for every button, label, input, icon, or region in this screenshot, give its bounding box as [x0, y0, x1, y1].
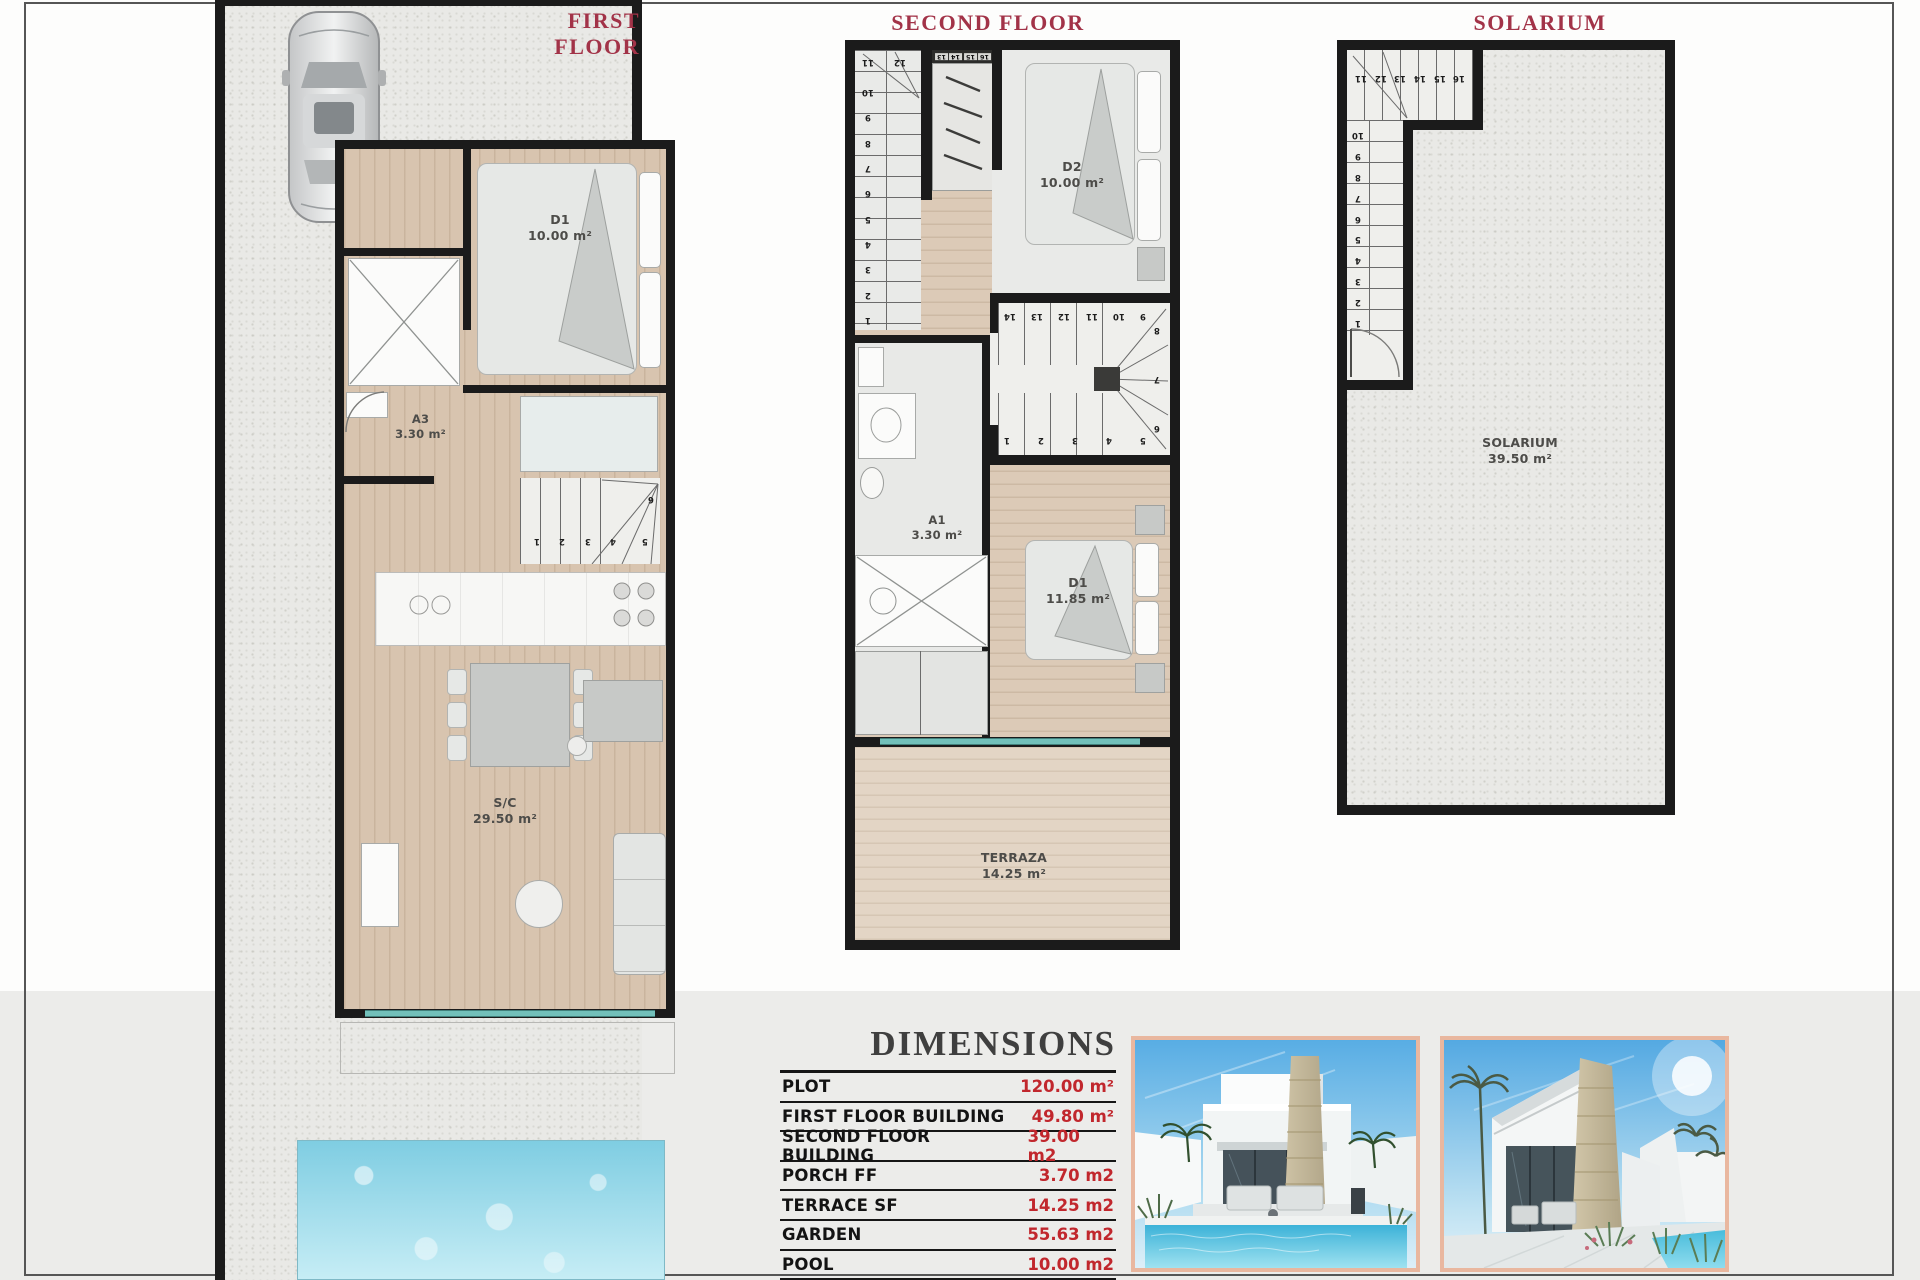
stair-number: 15: [964, 53, 977, 60]
stair-number: 14: [1004, 311, 1016, 321]
dimension-value: 39.00 m2: [1028, 1127, 1114, 1165]
ff-wall-left: [335, 140, 344, 1018]
dimension-value: 3.70 m2: [1039, 1166, 1114, 1185]
stair-number: 9: [1140, 311, 1146, 321]
sf-wall-stairs-left-b: [990, 425, 998, 455]
stair-numbers: 11 12: [862, 57, 906, 67]
stair-number: 7: [1355, 193, 1361, 203]
room-area: 10.00 m²: [1040, 175, 1104, 190]
room-name: D2: [1062, 159, 1081, 174]
ff-stairs: 1 2 3 4 6 5: [520, 478, 660, 564]
bed-pillow: [1135, 543, 1159, 597]
bed-pillow: [639, 172, 661, 268]
room-name: D1: [550, 212, 569, 227]
stair-number: 11: [1086, 311, 1098, 321]
ff-window-glass: [365, 1010, 655, 1017]
ff-wall-right: [666, 140, 675, 1018]
vanity-basin: [866, 403, 906, 447]
stair-number: 1: [534, 536, 540, 546]
sf-wall-stairs-left-a: [990, 303, 998, 333]
stair-number: 9: [1355, 151, 1361, 161]
stair-number: 14: [949, 53, 962, 60]
room-name: TERRAZA: [981, 850, 1047, 865]
dimension-value: 120.00 m²: [1020, 1077, 1114, 1096]
villa-render-photo-2: [1440, 1036, 1729, 1272]
dimension-label: TERRACE SF: [782, 1196, 898, 1215]
shower-x: [348, 258, 460, 386]
sol-wall-flight-bottom: [1337, 380, 1413, 390]
dimensions-table: PLOT 120.00 m² FIRST FLOOR BUILDING 49.8…: [780, 1070, 1116, 1280]
table-row: TERRACE SF 14.25 m2: [780, 1191, 1116, 1221]
room-area: 3.30 m²: [395, 427, 446, 441]
bathtub: [520, 396, 658, 472]
stair-number: 12: [1375, 73, 1387, 83]
stair-number: 10: [1113, 311, 1125, 321]
stair-number: 3: [1072, 435, 1078, 445]
chair: [447, 702, 467, 728]
stair-number: 2: [1038, 435, 1044, 445]
stair-numbers: 14 13 12 11 10 9: [1004, 311, 1146, 321]
shower-x: [855, 555, 988, 647]
stair-number: 4: [865, 239, 871, 249]
table-row: POOL 10.00 m2: [780, 1251, 1116, 1280]
room-area: 10.00 m²: [528, 228, 592, 243]
sol-wall-right: [1665, 40, 1675, 815]
stair-winders: [990, 303, 1170, 455]
stair-number: 6: [648, 494, 654, 504]
room-label-a3: A3 3.30 m²: [378, 412, 463, 442]
room-name: A1: [928, 513, 945, 527]
plot-wall-left: [215, 0, 225, 1280]
toilet: [860, 467, 884, 499]
stair-number: 3: [1355, 276, 1361, 286]
dimension-label: POOL: [782, 1255, 834, 1274]
room-name: SOLARIUM: [1482, 435, 1558, 450]
porch-outline: [340, 1022, 675, 1074]
room-area: 14.25 m²: [982, 866, 1046, 881]
ff-wall-a3-top: [344, 248, 471, 256]
dimension-value: 49.80 m²: [1032, 1107, 1114, 1126]
stair-divider: [1369, 120, 1370, 335]
sf-wall-a1-top: [855, 335, 990, 343]
stair-number: 2: [559, 536, 565, 546]
bed-pillow: [1137, 71, 1161, 153]
villa-angle-scene: [1444, 1040, 1725, 1268]
first-floor-plan: D1 10.00 m² A3 3.30 m²: [215, 0, 675, 1280]
stair-number: 11: [862, 57, 874, 67]
stair-numbers: 10 9 8 7 6 5 4 3 2 1: [861, 87, 875, 325]
sf-wall-left: [845, 40, 855, 950]
kitchen-sink: [407, 590, 455, 620]
stair-number: 5: [1140, 435, 1146, 445]
sf-window-glass: [880, 738, 1140, 745]
first-floor-title: FIRST FLOOR: [500, 8, 640, 60]
solarium-plan: 11 12 13 14 15 16 10 9 8 7 6 5 4 3 2 1 S…: [1335, 35, 1680, 825]
round-chair: [515, 880, 563, 928]
sf-wall-stairs-bottom: [990, 455, 1170, 465]
bed-pillow: [639, 272, 661, 368]
room-label-d1: D1 10.00 m²: [510, 212, 610, 245]
sf-wall-right: [1170, 40, 1180, 950]
kitchen-island: [583, 680, 663, 742]
stair-winders: [1347, 50, 1473, 120]
stair-numbers: 1 2 3 4: [534, 536, 616, 546]
stair-number: 6: [865, 188, 871, 198]
villa-render-photo-1: [1131, 1036, 1420, 1272]
second-floor-plan: 11 12 10 9 8 7 6 5 4 3 2 1 13 14 15 16: [840, 35, 1185, 960]
sf-wall-d2-bottom: [990, 293, 1170, 303]
dimension-label: PLOT: [782, 1077, 831, 1096]
stair-number: 6: [1355, 214, 1361, 224]
room-area: 3.30 m²: [912, 528, 963, 542]
stair-winders: [520, 478, 660, 564]
bed-fold: [477, 163, 637, 375]
stair-number: 8: [865, 138, 871, 148]
stair-number: 1: [1355, 318, 1361, 328]
room-label-sc: S/C 29.50 m²: [455, 795, 555, 828]
second-floor-title: SECOND FLOOR: [880, 10, 1096, 36]
table-row: SECOND FLOOR BUILDING 39.00 m2: [780, 1132, 1116, 1162]
bed-fold: [1025, 63, 1135, 245]
stair-number: 10: [1352, 130, 1364, 140]
stair-number: 7: [865, 163, 871, 173]
stair-number: 16: [1453, 73, 1465, 83]
stair-number: 4: [1106, 435, 1112, 445]
dimension-label: PORCH FF: [782, 1166, 877, 1185]
room-name: A3: [412, 412, 429, 426]
dimension-value: 14.25 m2: [1027, 1196, 1114, 1215]
stair-numbers: 11 12 13 14 15 16: [1355, 73, 1465, 83]
room-area: 29.50 m²: [473, 811, 537, 826]
room-label-terraza: TERRAZA 14.25 m²: [964, 850, 1064, 883]
dimension-value: 10.00 m2: [1027, 1255, 1114, 1274]
dimension-label: SECOND FLOOR BUILDING: [782, 1127, 1028, 1165]
stair-number: 11: [1355, 73, 1367, 83]
villa-front-scene: [1135, 1040, 1416, 1268]
chair: [447, 669, 467, 695]
stair-number: 8: [1355, 172, 1361, 182]
table-row: PORCH FF 3.70 m2: [780, 1162, 1116, 1192]
dining-table: [470, 663, 570, 767]
stair-number: 6: [1154, 423, 1160, 433]
island-stool: [567, 736, 587, 756]
dimension-value: 55.63 m2: [1027, 1225, 1114, 1244]
sol-wall-flight-right: [1403, 120, 1413, 385]
sf-mid-stairs: 14 13 12 11 10 9 8 7 6 1 2 3 4 5: [990, 303, 1170, 455]
ff-wall-d1-left: [463, 149, 471, 330]
sol-wall-cells-bottom: [1403, 120, 1483, 130]
door-arc: [1349, 327, 1401, 379]
sol-wall-top: [1337, 40, 1675, 50]
room-name: D1: [1068, 575, 1087, 590]
table-row: PLOT 120.00 m²: [780, 1073, 1116, 1103]
nightstand: [1137, 247, 1165, 281]
bed-pillow: [1137, 159, 1161, 241]
stove-burners: [607, 576, 661, 642]
stair-number: 5: [865, 214, 871, 224]
stair-number: 4: [610, 536, 616, 546]
stair-number: 13: [1031, 311, 1043, 321]
swimming-pool: [297, 1140, 665, 1280]
dimension-label: FIRST FLOOR BUILDING: [782, 1107, 1005, 1126]
sol-wall-left: [1337, 40, 1347, 815]
ff-wall-hall: [344, 476, 434, 484]
stair-number: 8: [1154, 325, 1160, 335]
stair-number: 13: [935, 53, 948, 60]
ff-wall-d1-bottom: [463, 385, 666, 393]
solarium-title: SOLARIUM: [1440, 10, 1640, 36]
dimension-label: GARDEN: [782, 1225, 862, 1244]
stair-number: 1: [865, 315, 871, 325]
dimensions-title: DIMENSIONS: [780, 1024, 1116, 1064]
room-area: 11.85 m²: [1046, 591, 1110, 606]
stair-number: 15: [1434, 73, 1446, 83]
terraza-floor: [855, 747, 1170, 940]
room-area: 39.50 m²: [1488, 451, 1552, 466]
chair: [447, 735, 467, 761]
floorplan-sheet: D1 10.00 m² A3 3.30 m²: [0, 0, 1920, 1280]
stair-number: 9: [865, 112, 871, 122]
sol-wall-bottom: [1337, 805, 1675, 815]
stair-number: 5: [1355, 234, 1361, 244]
stair-number: 3: [585, 536, 591, 546]
stair-number: 7: [1154, 374, 1160, 384]
sf-wall-d2-left: [992, 50, 1002, 170]
room-label-d2: D2 10.00 m²: [1022, 159, 1122, 192]
stair-number: 16: [978, 53, 991, 60]
ff-wall-top: [335, 140, 675, 149]
wardrobe-hangers: [932, 63, 994, 191]
sf-wall-stairs-right: [921, 50, 932, 200]
nightstand: [1135, 505, 1165, 535]
room-label-a1: A1 3.30 m²: [897, 513, 977, 543]
side-cabinet: [361, 843, 399, 927]
stair-number: 12: [894, 57, 906, 67]
sf-wall-bottom: [845, 940, 1180, 950]
room-label-solarium: SOLARIUM 39.50 m²: [1460, 435, 1580, 468]
bath-cabinet: [858, 347, 884, 387]
bed-pillow: [1135, 601, 1159, 655]
stair-number: 5: [642, 536, 648, 546]
plot-wall-top: [215, 0, 642, 6]
room-name: S/C: [493, 795, 516, 810]
stair-number: 1: [1004, 435, 1010, 445]
sofa: [613, 833, 666, 975]
nightstand: [1135, 663, 1165, 693]
stair-numbers: 8 7 6: [1150, 325, 1164, 433]
stair-number: 14: [1414, 73, 1426, 83]
room-label-d1b: D1 11.85 m²: [1028, 575, 1128, 608]
stair-number: 13: [1394, 73, 1406, 83]
stair-number: 2: [1355, 297, 1361, 307]
stair-numbers: 1 2 3 4 5: [1004, 435, 1146, 445]
stair-number: 4: [1355, 255, 1361, 265]
stair-number: 10: [862, 87, 874, 97]
closet-divider: [920, 651, 921, 735]
stair-number: 3: [865, 264, 871, 274]
stair-number: 12: [1058, 311, 1070, 321]
closet-steps: 13 14 15 16: [932, 50, 994, 63]
stair-numbers: 10 9 8 7 6 5 4 3 2 1: [1351, 130, 1365, 328]
stair-post: [1094, 367, 1120, 391]
sf-wall-top: [845, 40, 1180, 50]
bath-closet: [855, 651, 988, 735]
sol-wall-cells-right: [1473, 50, 1483, 120]
door-arc: [344, 390, 386, 434]
table-row: GARDEN 55.63 m2: [780, 1221, 1116, 1251]
stair-number: 2: [865, 290, 871, 300]
